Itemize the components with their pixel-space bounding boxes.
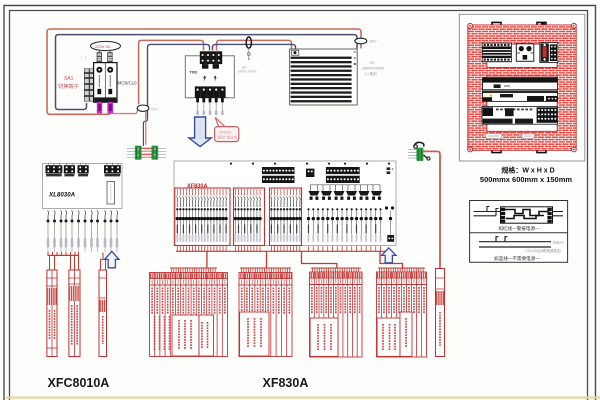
svg-text:XF830A: XF830A	[219, 130, 232, 134]
svg-text:⊺ ⊺: ⊺ ⊺	[80, 56, 87, 62]
svg-text:外接24V: 外接24V	[553, 239, 564, 244]
svg-text:500mmx 600mm x 150mm: 500mmx 600mm x 150mm	[480, 175, 572, 184]
svg-text:TXD: TXD	[190, 71, 198, 75]
svg-text:XL8030A: XL8030A	[48, 192, 76, 199]
svg-text:(-) 备用: (-) 备用	[365, 71, 377, 76]
svg-text:220V 50-: 220V 50-	[95, 44, 112, 49]
svg-text:220V: 220V	[369, 40, 377, 44]
svg-text:MCB/C10: MCB/C10	[118, 81, 138, 86]
svg-text:XF830A: XF830A	[187, 184, 208, 190]
svg-text:XFC8010A: XFC8010A	[48, 376, 110, 390]
svg-text:220V: 220V	[151, 108, 159, 112]
svg-text:(480W/240W): (480W/240W)	[362, 67, 384, 71]
svg-text:（ DC24V由消防电源供给）: （ DC24V由消防电源供给）	[523, 248, 563, 253]
svg-text:(480n 240W: (480n 240W	[238, 70, 257, 74]
svg-text:7W: 7W	[369, 61, 375, 65]
svg-text:规格：W x H x D: 规格：W x H x D	[501, 166, 554, 175]
svg-text:切换端子: 切换端子	[58, 82, 79, 90]
svg-text:XA1: XA1	[64, 76, 74, 82]
svg-text:如蓝线—不需要电源—: 如蓝线—不需要电源—	[494, 255, 540, 262]
svg-text:如红线—警报电源—: 如红线—警报电源—	[498, 225, 540, 232]
svg-text:XF830A: XF830A	[263, 376, 309, 390]
svg-text:消防广播主机: 消防广播主机	[217, 134, 238, 139]
